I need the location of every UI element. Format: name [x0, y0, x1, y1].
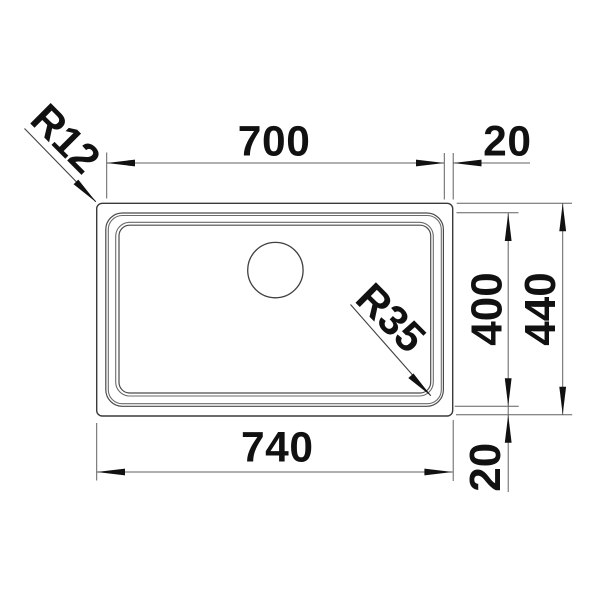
svg-text:440: 440 — [516, 272, 565, 345]
svg-text:400: 400 — [463, 272, 512, 345]
svg-text:20: 20 — [461, 443, 510, 492]
svg-text:740: 740 — [241, 424, 314, 471]
svg-text:700: 700 — [238, 118, 311, 165]
svg-text:20: 20 — [483, 118, 531, 165]
